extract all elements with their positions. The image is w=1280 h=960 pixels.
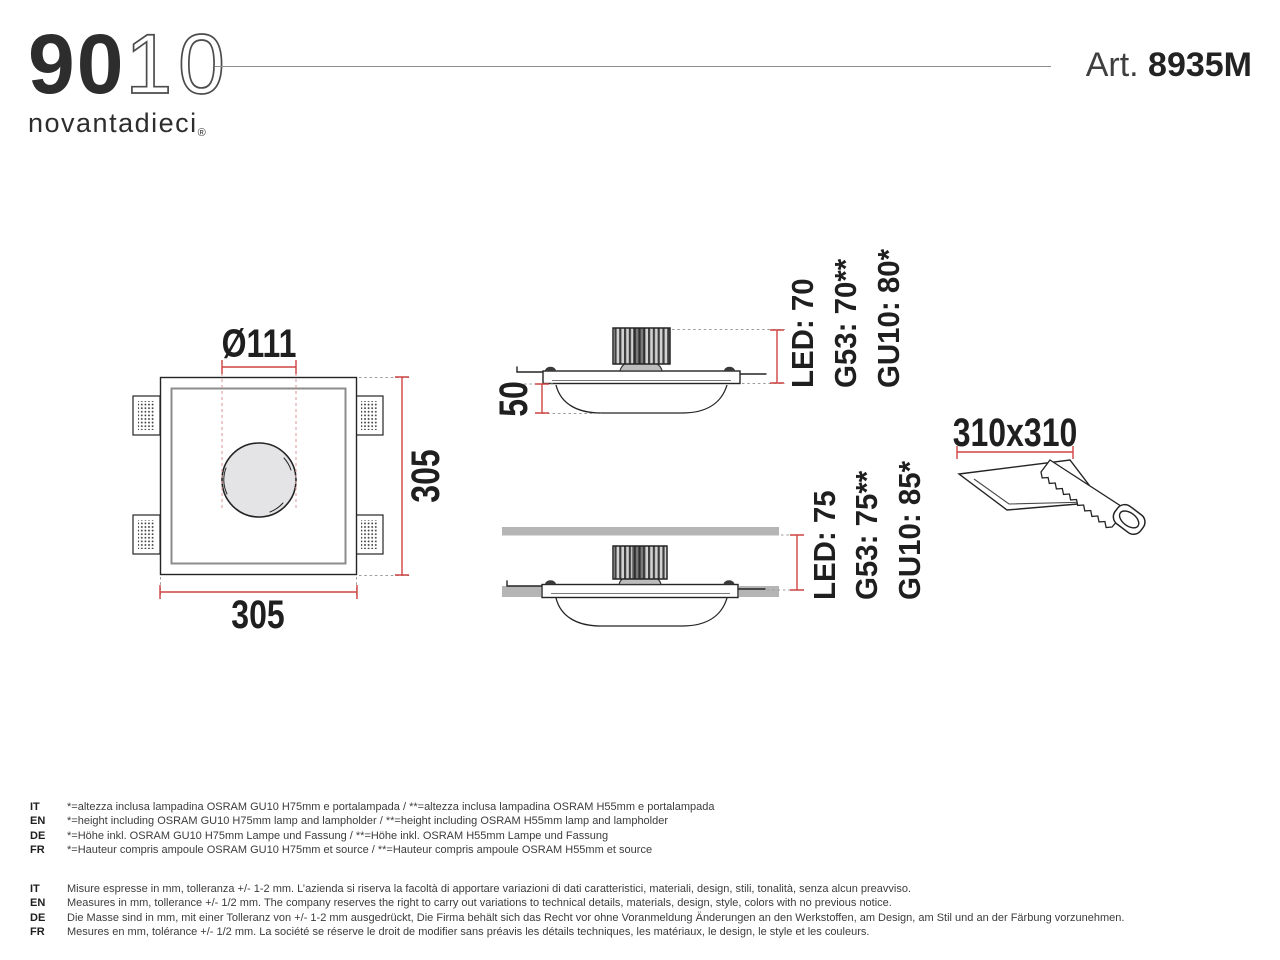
height-label: 305 — [403, 449, 448, 502]
note-row: EN*=height including OSRAM GU10 H75mm la… — [30, 814, 1260, 828]
note-text: Measures in mm, tollerance +/- 1/2 mm. T… — [67, 896, 892, 910]
note-lang: DE — [30, 911, 67, 925]
mounting-tab-top-left — [133, 396, 160, 435]
depth-label: 50 — [491, 381, 536, 417]
note-row: IT*=altezza inclusa lampadina OSRAM GU10… — [30, 800, 1260, 814]
flange-plate — [543, 371, 740, 384]
lamp-hole — [222, 443, 296, 517]
ceiling-slab-lower-left — [502, 586, 541, 597]
plaster-bell — [556, 385, 727, 413]
general-notes: ITMisure espresse in mm, tolleranza +/- … — [30, 882, 1260, 939]
note-text: *=Höhe inkl. OSRAM GU10 H75mm Lampe und … — [67, 829, 608, 843]
note-text: *=altezza inclusa lampadina OSRAM GU10 H… — [67, 800, 714, 814]
plaster-bell — [556, 598, 727, 626]
screw-right — [724, 367, 735, 371]
note-lang: EN — [30, 896, 67, 910]
screw-right — [724, 580, 735, 584]
lamp-notes: IT*=altezza inclusa lampadina OSRAM GU10… — [30, 800, 1260, 857]
note-lang: IT — [30, 882, 67, 896]
note-lang: DE — [30, 829, 67, 843]
note-text: Die Masse sind in mm, mit einer Tolleran… — [67, 911, 1124, 925]
lamp-heatsink — [613, 328, 670, 364]
lamp-height-led: LED: 75 — [808, 490, 842, 600]
dimension-lamp-height-surface: LED: 70 G53: 70** GU10: 80* — [672, 249, 906, 388]
wire-left — [507, 581, 542, 586]
ceiling-slab-lower-right — [739, 586, 779, 597]
cutout-illustration: 310x310 — [953, 410, 1149, 538]
note-text: *=height including OSRAM GU10 H75mm lamp… — [67, 814, 668, 828]
lamp-height-gu10: GU10: 85* — [893, 461, 927, 600]
note-row: DEDie Masse sind in mm, mit einer Toller… — [30, 911, 1260, 925]
front-view: Ø111 305 305 — [133, 321, 448, 637]
lamp-heatsink — [613, 546, 667, 579]
note-text: Misure espresse in mm, tolleranza +/- 1-… — [67, 882, 911, 896]
note-lang: EN — [30, 814, 67, 828]
ceiling-slab-upper — [502, 527, 779, 536]
mounting-tab-bottom-right — [356, 515, 383, 554]
note-row: DE*=Höhe inkl. OSRAM GU10 H75mm Lampe un… — [30, 829, 1260, 843]
width-label: 305 — [231, 592, 284, 637]
note-lang: FR — [30, 925, 67, 939]
note-row: FRMesures en mm, tolérance +/- 1/2 mm. L… — [30, 925, 1260, 939]
note-lang: IT — [30, 800, 67, 814]
note-text: Mesures en mm, tolérance +/- 1/2 mm. La … — [67, 925, 869, 939]
note-lang: FR — [30, 843, 67, 857]
cutout-size-label: 310x310 — [953, 410, 1078, 455]
lamp-height-gu10: GU10: 80* — [872, 249, 906, 388]
lamp-height-led: LED: 70 — [786, 278, 820, 388]
note-row: ENMeasures in mm, tollerance +/- 1/2 mm.… — [30, 896, 1260, 910]
note-text: *=Hauteur compris ampoule OSRAM GU10 H75… — [67, 843, 652, 857]
lamp-height-g53: G53: 75** — [850, 471, 884, 600]
mounting-tab-bottom-left — [133, 515, 160, 554]
screw-left — [545, 367, 556, 371]
datasheet-page: 9010 novantadieci® Art. 8935M — [0, 0, 1280, 960]
mounting-tab-top-right — [356, 396, 383, 435]
section-view-surface: 50 LED: 70 G53: 70** GU10: 80* — [491, 249, 907, 417]
dimension-width: 305 — [160, 577, 357, 637]
lamp-height-g53: G53: 70** — [829, 259, 863, 388]
flange-plate — [542, 585, 738, 598]
diameter-label: Ø111 — [222, 321, 297, 366]
wire-left — [517, 367, 543, 372]
section-view-recessed: LED: 75 G53: 75** GU10: 85* — [502, 461, 927, 626]
note-row: FR*=Hauteur compris ampoule OSRAM GU10 H… — [30, 843, 1260, 857]
dimension-lamp-height-recessed: LED: 75 G53: 75** GU10: 85* — [767, 461, 927, 600]
note-row: ITMisure espresse in mm, tolleranza +/- … — [30, 882, 1260, 896]
screw-left — [545, 580, 556, 584]
